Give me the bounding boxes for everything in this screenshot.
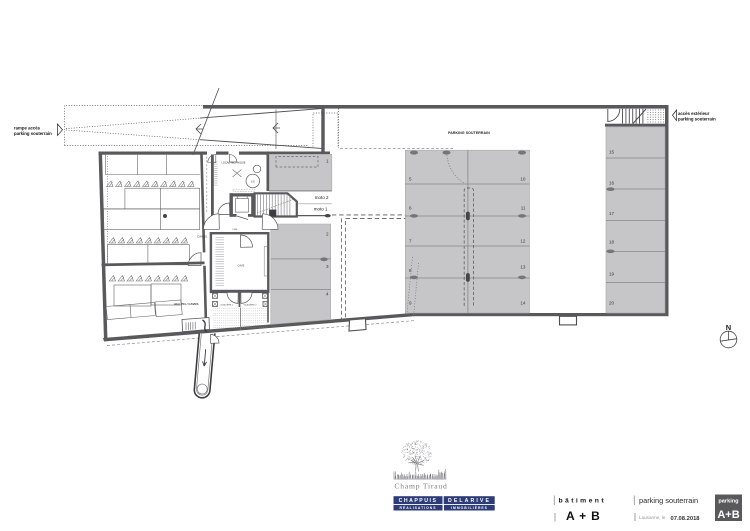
svg-text:10: 10 <box>520 177 526 182</box>
svg-text:parking: parking <box>718 499 739 505</box>
svg-text:accès extérieur: accès extérieur <box>678 111 710 116</box>
svg-text:9: 9 <box>409 301 412 306</box>
svg-text:07.08.2018: 07.08.2018 <box>671 516 701 522</box>
svg-text:CHAPPUIS: CHAPPUIS <box>399 498 438 504</box>
svg-text:PARKING SOUTERRAIN: PARKING SOUTERRAIN <box>448 131 490 135</box>
svg-text:3: 3 <box>326 264 329 269</box>
svg-text:N: N <box>726 323 731 332</box>
svg-text:CAVE: CAVE <box>238 264 245 268</box>
svg-text:parking souterrain: parking souterrain <box>639 496 698 505</box>
svg-text:parking souterrain: parking souterrain <box>14 131 52 136</box>
svg-text:moto 2: moto 2 <box>315 195 329 200</box>
svg-text:18: 18 <box>609 240 615 245</box>
svg-text:17: 17 <box>609 211 615 216</box>
svg-text:Abri PCi / CAVES: Abri PCi / CAVES <box>174 302 198 306</box>
svg-text:14: 14 <box>520 301 526 306</box>
svg-text:15: 15 <box>609 150 615 155</box>
svg-text:IMMOBILIÈRES: IMMOBILIÈRES <box>451 505 488 510</box>
svg-text:13: 13 <box>520 265 526 270</box>
svg-text:PMR: PMR <box>233 229 238 231</box>
svg-text:4: 4 <box>326 292 329 297</box>
svg-text:1: 1 <box>326 159 329 164</box>
svg-text:Lausanne, le: Lausanne, le <box>639 515 666 520</box>
svg-text:20: 20 <box>609 301 615 306</box>
svg-text:12: 12 <box>520 239 526 244</box>
svg-text:rampe accès: rampe accès <box>14 125 41 130</box>
svg-text:GLACIÈRE 1: GLACIÈRE 1 <box>220 304 234 307</box>
svg-text:11: 11 <box>521 206 526 211</box>
svg-text:A + B: A + B <box>566 509 601 523</box>
svg-text:RÉALISATIONS: RÉALISATIONS <box>400 505 437 510</box>
svg-text:2: 2 <box>326 232 329 237</box>
svg-text:5: 5 <box>409 177 412 182</box>
svg-text:GLACIÈRE 2: GLACIÈRE 2 <box>244 304 258 307</box>
svg-text:19: 19 <box>609 272 615 277</box>
svg-text:bâtiment: bâtiment <box>559 497 607 504</box>
svg-text:LOCAL TECHNIQUE: LOCAL TECHNIQUE <box>222 160 246 164</box>
svg-text:Champ Tiraud: Champ Tiraud <box>394 481 447 490</box>
svg-text:moto 1: moto 1 <box>314 206 328 211</box>
svg-text:500: 500 <box>251 180 256 183</box>
svg-text:CAVES: CAVES <box>197 235 207 239</box>
svg-text:parking souterrain: parking souterrain <box>678 116 716 121</box>
svg-text:DELARIVE: DELARIVE <box>448 498 491 504</box>
svg-text:A+B: A+B <box>717 509 739 521</box>
svg-text:16: 16 <box>609 181 615 186</box>
svg-text:6: 6 <box>409 206 412 211</box>
svg-text:7: 7 <box>409 239 412 244</box>
